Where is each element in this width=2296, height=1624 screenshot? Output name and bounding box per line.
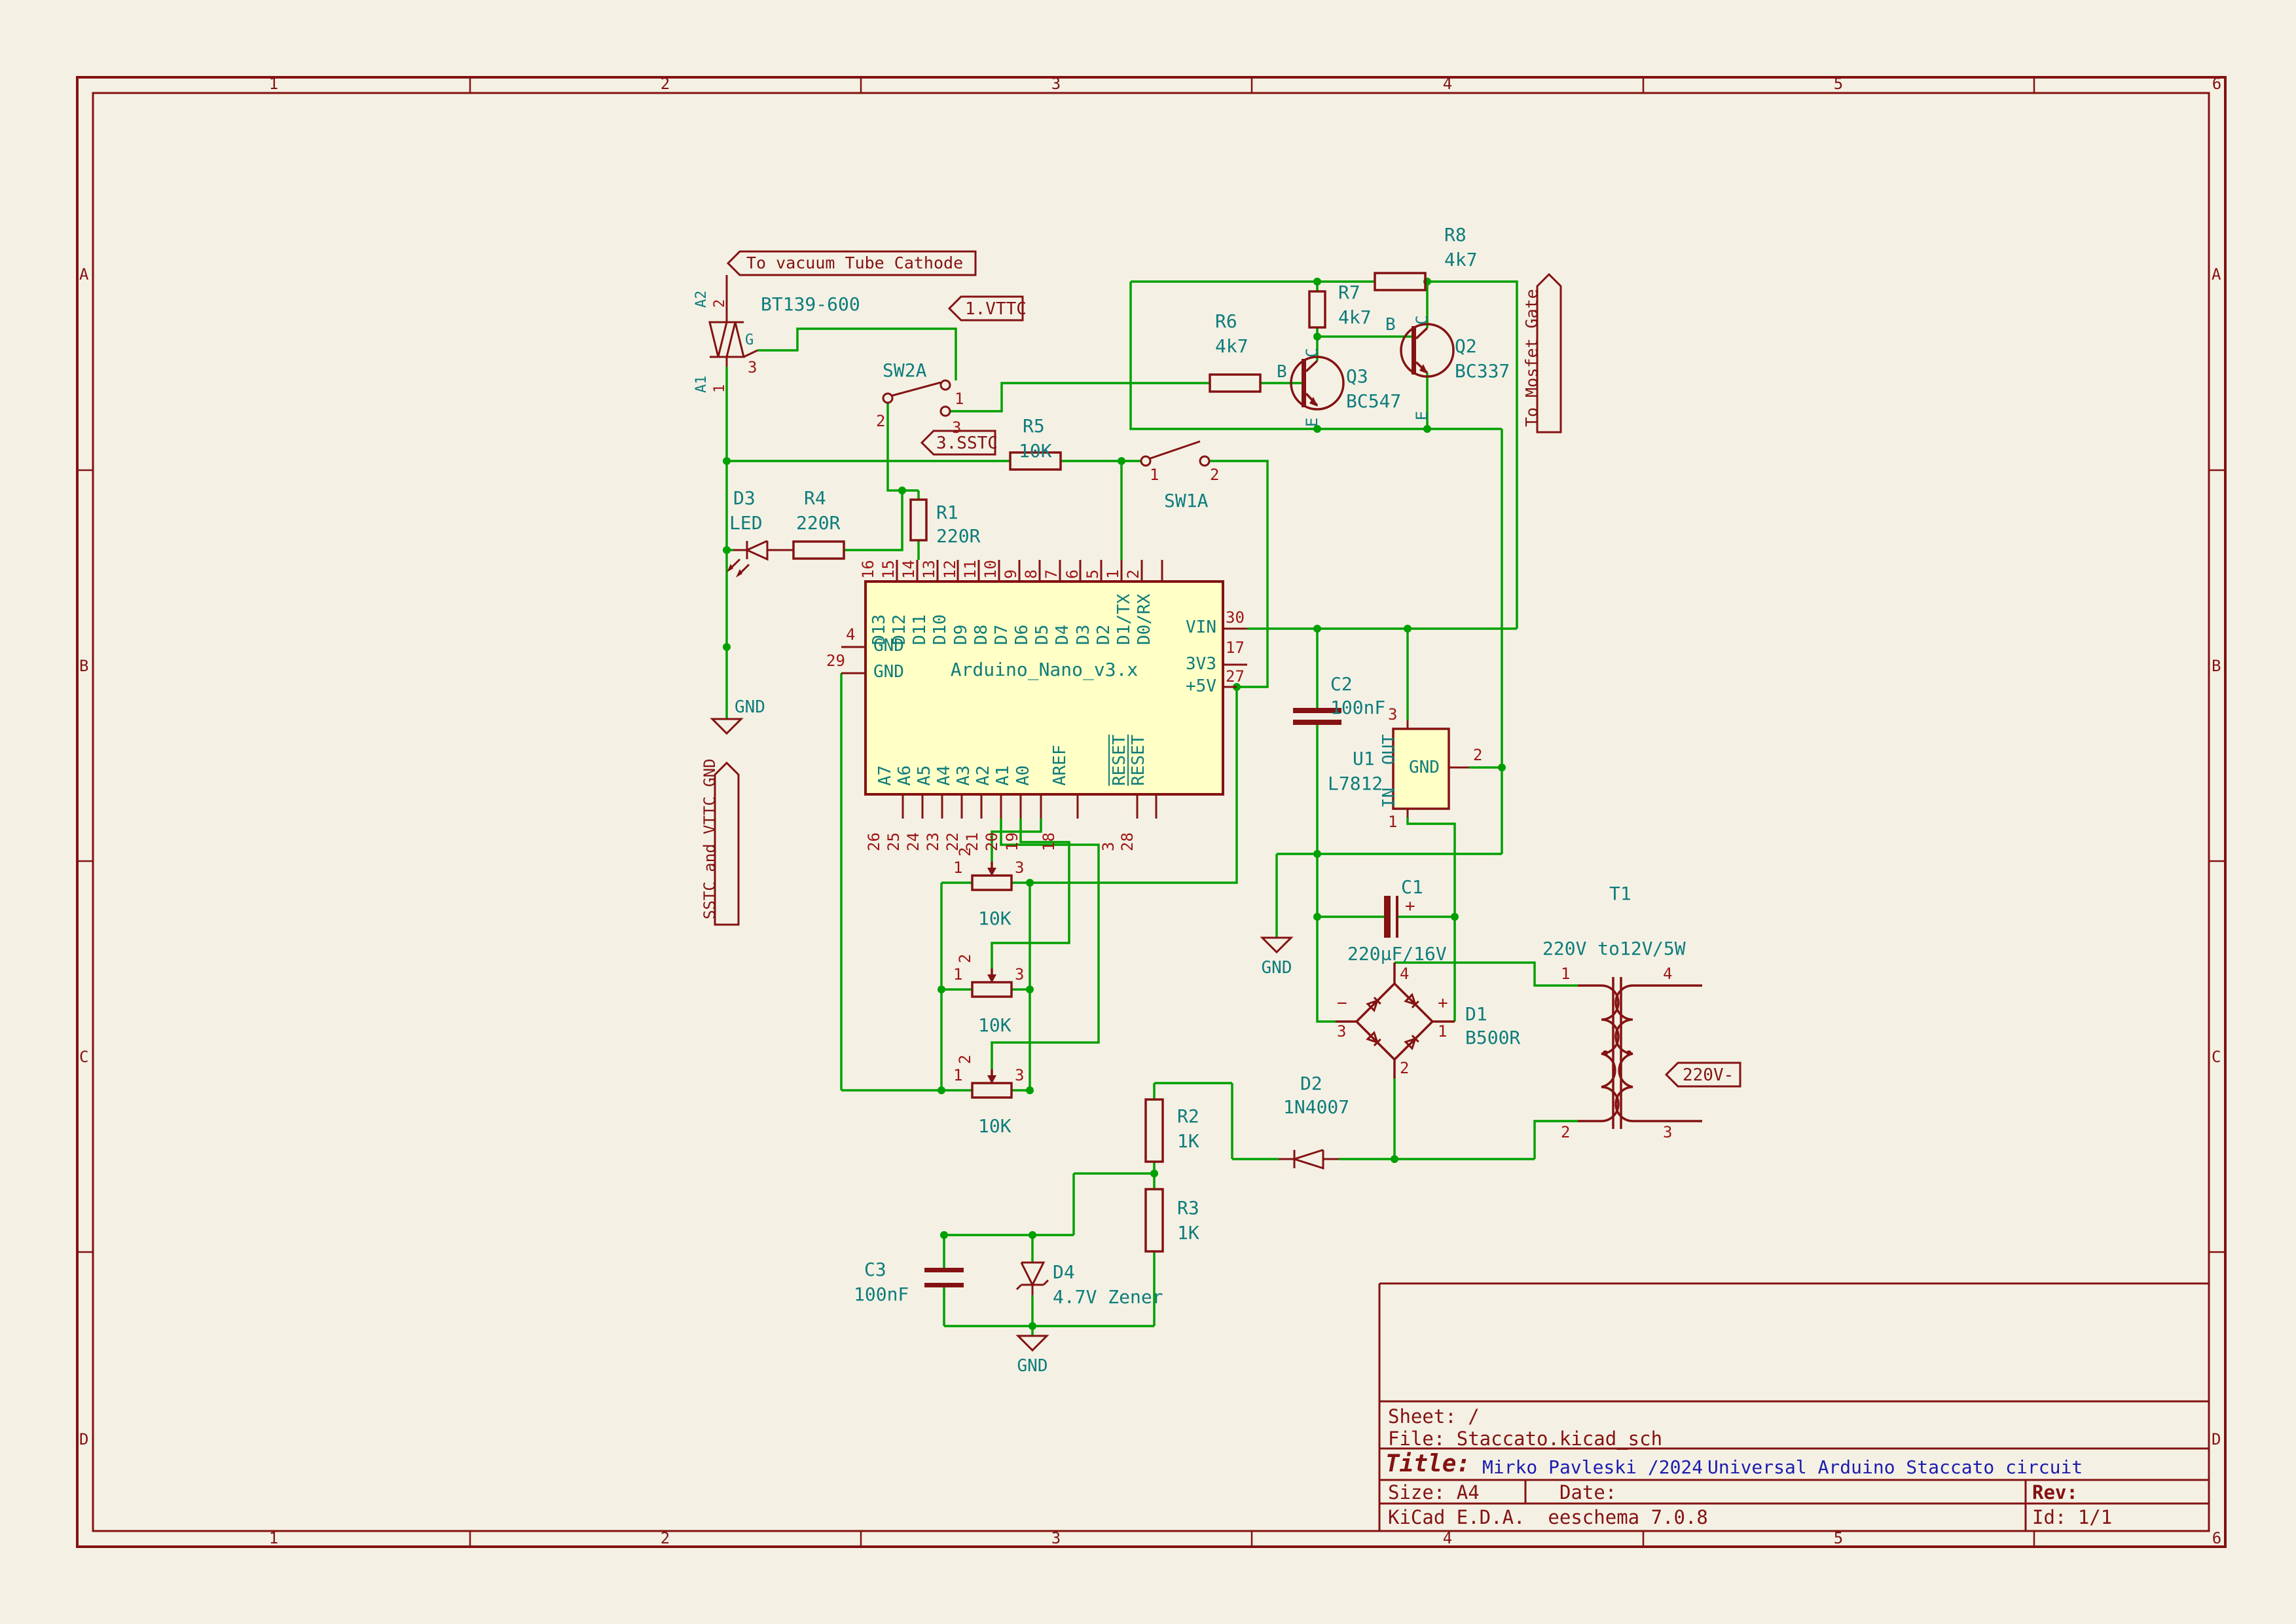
capacitor-c1 (1384, 896, 1398, 938)
d3-ref[interactable]: D3 (733, 489, 756, 509)
u1-pin-gnd: GND (1409, 758, 1440, 777)
sw1a-pin1: 1 (1150, 466, 1159, 483)
t1-value[interactable]: 220V to12V (1542, 939, 1653, 959)
ard-top-n-2: 14 (900, 560, 918, 579)
zone-col-5-bottom: 5 (1825, 1530, 1851, 1547)
zone-col-3-top: 3 (1043, 75, 1069, 92)
tb-size: Size: A4 (1388, 1483, 1480, 1504)
ard-top-l-8: D5 (1033, 625, 1051, 645)
t1-power: /5W (1652, 939, 1686, 959)
ard-top-l-10: D3 (1074, 625, 1093, 645)
r7-value[interactable]: 4k7 (1338, 308, 1372, 328)
u1-pin-out: OUT (1380, 734, 1398, 765)
c3-value[interactable]: 100nF (854, 1285, 909, 1305)
pot3-n2: 2 (956, 1055, 974, 1064)
t1-ref[interactable]: T1 (1609, 884, 1631, 904)
ard-bot-l-5: A2 (974, 766, 993, 786)
arduino-pin17-number: 17 (1226, 639, 1245, 656)
title-block-lines (1379, 1283, 2209, 1531)
q3-pin-b: B (1277, 363, 1287, 382)
zone-col-1-top: 1 (261, 75, 287, 92)
q3-value[interactable]: BC547 (1346, 392, 1401, 412)
d2-ref[interactable]: D2 (1300, 1074, 1322, 1094)
zone-col-1-bottom: 1 (261, 1530, 287, 1547)
sstc-label[interactable]: 3.SSTC (936, 434, 998, 453)
zone-row-d-right: D (2212, 1431, 2221, 1448)
wires (727, 282, 1578, 1336)
zone-col-4-top: 4 (1434, 75, 1461, 92)
arduino-3v3-label: 3V3 (1159, 655, 1216, 674)
zone-col-2-bottom: 2 (652, 1530, 678, 1547)
pot1-n3: 3 (1015, 859, 1024, 876)
d1-plus: + (1438, 994, 1448, 1013)
ard-bot-n-10: 28 (1118, 832, 1137, 851)
arduino-pin27-number: 27 (1226, 668, 1245, 685)
c3-ref[interactable]: C3 (864, 1260, 886, 1280)
arduino-vin-label: VIN (1159, 618, 1216, 637)
tb-id: Id: 1/1 (2032, 1507, 2112, 1528)
ard-bot-n-6: 20 (983, 832, 1001, 851)
arduino-5v-label: +5V (1159, 677, 1216, 696)
c2-ref[interactable]: C2 (1330, 674, 1353, 695)
ard-top-n-10: 6 (1063, 570, 1082, 579)
ard-bot-l-6: A1 (994, 766, 1012, 786)
ard-bot-l-10: RESET (1129, 735, 1148, 786)
ard-top-l-1: D12 (890, 614, 909, 645)
q3-pin-e: E (1303, 418, 1321, 427)
r5-ref[interactable]: R5 (1023, 416, 1045, 437)
q2-pin-e: E (1413, 411, 1431, 420)
ard-top-l-11: D2 (1095, 625, 1113, 645)
tb-title[interactable]: Universal Arduino Staccato circuit (1707, 1458, 2083, 1478)
d3-value[interactable]: LED (729, 513, 763, 534)
q2-ref[interactable]: Q2 (1455, 337, 1477, 357)
r6-ref[interactable]: R6 (1215, 312, 1237, 332)
ard-top-n-13: 2 (1124, 570, 1142, 579)
d4-ref[interactable]: D4 (1053, 1263, 1075, 1283)
d1-n4: 4 (1400, 965, 1409, 982)
zone-row-c-right: C (2212, 1048, 2221, 1065)
t1-n3: 3 (1663, 1124, 1672, 1141)
r1-value[interactable]: 220R (936, 526, 980, 547)
vttc-cathode-label[interactable]: To vacuum Tube Cathode (746, 254, 963, 272)
pot3-n1: 1 (953, 1067, 962, 1084)
bridge-rectifier-symbol (1336, 963, 1455, 1079)
ard-top-n-1: 15 (879, 560, 898, 579)
transistor-q2 (1401, 324, 1453, 377)
r8-value[interactable]: 4k7 (1444, 250, 1478, 270)
t1-n1: 1 (1561, 965, 1570, 982)
u1-n3: 3 (1388, 706, 1397, 723)
r4-value[interactable]: 220R (796, 513, 840, 534)
tb-date: Date: (1559, 1483, 1616, 1504)
ard-top-n-8: 8 (1022, 570, 1040, 579)
ard-top-n-6: 10 (981, 560, 1000, 579)
r5-value[interactable]: 10K (1019, 441, 1052, 462)
sw1a-pin2: 2 (1210, 466, 1219, 483)
triac-symbol (710, 275, 757, 367)
triac-pin-a2: A2 (693, 291, 711, 308)
t1-n4: 4 (1663, 965, 1672, 982)
ard-top-n-11: 5 (1084, 570, 1102, 579)
u1-value[interactable]: L7812 (1328, 774, 1383, 794)
gnd-text-1: GND (735, 698, 765, 717)
c1-ref[interactable]: C1 (1401, 877, 1423, 898)
arduino-gnd-label-2: GND (873, 663, 904, 682)
ard-top-l-13: D0/RX (1135, 594, 1154, 645)
sw2a-pin2: 2 (876, 413, 885, 430)
c1-value[interactable]: 220µF/16V (1347, 944, 1447, 965)
ard-bot-l-0: A7 (876, 766, 894, 786)
ard-top-n-3: 13 (920, 560, 938, 579)
r4-ref[interactable]: R4 (804, 489, 826, 509)
r7-ref[interactable]: R7 (1338, 283, 1360, 303)
zone-row-b-left: B (79, 657, 88, 674)
ard-bot-n-0: 26 (865, 832, 883, 851)
zone-row-c-left: C (79, 1048, 88, 1065)
pot1-n1: 1 (953, 859, 962, 876)
ard-top-l-12: D1/TX (1115, 594, 1133, 645)
ard-top-l-5: D8 (972, 625, 991, 645)
pot2-value[interactable]: 10K (978, 1016, 1011, 1036)
u1-pin-in: IN (1380, 788, 1398, 808)
transformer-symbol (1578, 977, 1702, 1129)
ard-top-l-9: D4 (1053, 625, 1072, 645)
ard-bot-n-8: 18 (1040, 832, 1058, 851)
sstc-vttc-gnd-label[interactable]: SSTC and VTTC GND (701, 758, 719, 919)
triac-pin1-number: 1 (711, 384, 729, 393)
zone-col-2-top: 2 (652, 75, 678, 92)
led-symbol (727, 541, 793, 578)
arduino-pin30-number: 30 (1226, 609, 1245, 626)
schematic-sheet: 1 2 3 4 5 6 1 2 3 4 5 6 A B C D A B C D … (0, 0, 2296, 1624)
zone-col-6-bottom: 6 (2204, 1530, 2230, 1547)
pot3-value[interactable]: 10K (978, 1116, 1011, 1137)
gnd-text-2: GND (1254, 959, 1299, 978)
d1-n3: 3 (1337, 1023, 1346, 1040)
ard-bot-l-8: AREF (1051, 745, 1069, 786)
zone-row-a-right: A (2212, 266, 2221, 283)
tb-sheet: Sheet: / (1388, 1407, 1480, 1428)
tb-rev: Rev: (2032, 1483, 2078, 1504)
triac-value[interactable]: BT139-600 (761, 295, 860, 315)
ard-top-l-3: D10 (931, 614, 949, 645)
d1-value[interactable]: B500R (1465, 1028, 1520, 1048)
mosfet-gate-label[interactable]: To Mosfet Gate (1523, 289, 1541, 427)
ard-top-l-7: D6 (1013, 625, 1031, 645)
r3-ref[interactable]: R3 (1177, 1198, 1199, 1219)
capacitor-c3 (924, 1268, 964, 1287)
ard-bot-l-9: RESET (1110, 735, 1129, 786)
v220-label[interactable]: 220V- (1683, 1066, 1734, 1085)
zone-col-6-top: 6 (2204, 75, 2230, 92)
c1-plus: + (1405, 897, 1415, 916)
zone-col-3-bottom: 3 (1043, 1530, 1069, 1547)
q3-pin-c: C (1303, 348, 1321, 358)
ard-top-n-4: 12 (941, 560, 959, 579)
triac-pin-a1: A1 (693, 376, 711, 394)
ard-top-n-9: 7 (1042, 570, 1061, 579)
zone-row-d-left: D (79, 1431, 88, 1448)
q2-pin-b: B (1385, 316, 1396, 335)
arduino-pin29-number: 29 (826, 652, 845, 669)
zener-d4 (1017, 1263, 1048, 1295)
t1-n2: 2 (1561, 1124, 1570, 1141)
d1-minus: − (1337, 994, 1347, 1013)
tb-file: File: Staccato.kicad_sch (1388, 1429, 1662, 1450)
triac-pin2-number: 2 (711, 299, 729, 308)
pot1-value[interactable]: 10K (978, 909, 1011, 929)
d1-n1: 1 (1438, 1023, 1447, 1040)
q2-value[interactable]: BC337 (1455, 361, 1510, 382)
sw2a-pin1: 1 (955, 390, 964, 407)
sw2a-pin3: 3 (952, 419, 961, 436)
r2-value[interactable]: 1K (1177, 1132, 1199, 1152)
gnd-text-3: GND (1010, 1357, 1055, 1376)
ard-top-l-0: D13 (870, 614, 888, 645)
r2-ref[interactable]: R2 (1177, 1107, 1199, 1127)
r3-value[interactable]: 1K (1177, 1223, 1199, 1244)
schematic-canvas (0, 0, 2296, 1624)
ard-bot-n-7: 19 (1003, 832, 1021, 851)
c2-value[interactable]: 100nF (1330, 698, 1385, 718)
ard-top-n-0: 16 (859, 560, 877, 579)
ard-top-l-4: D9 (952, 625, 970, 645)
ard-bot-l-1: A6 (896, 766, 914, 786)
ard-bot-l-4: A3 (955, 766, 973, 786)
u1-ref[interactable]: U1 (1353, 749, 1375, 769)
zone-col-4-bottom: 4 (1434, 1530, 1461, 1547)
zone-col-5-top: 5 (1825, 75, 1851, 92)
ard-top-l-6: D7 (993, 625, 1011, 645)
ard-bot-n-3: 23 (924, 832, 942, 851)
sw2a-ref[interactable]: SW2A (883, 361, 926, 381)
tb-software: KiCad E.D.A. eeschema 7.0.8 (1388, 1507, 1708, 1528)
tb-author[interactable]: Mirko Pavleski /2024 (1482, 1458, 1703, 1478)
ard-bot-l-7: A0 (1014, 766, 1032, 786)
u1-n1: 1 (1388, 813, 1397, 830)
pot1-n2: 2 (956, 847, 974, 857)
ard-bot-n-1: 25 (884, 832, 903, 851)
pot2-n3: 3 (1015, 966, 1024, 983)
ard-bot-n-2: 24 (904, 832, 922, 851)
d4-value[interactable]: 4.7V Zener (1053, 1287, 1163, 1308)
r8-ref[interactable]: R8 (1444, 225, 1467, 246)
q2-pin-c: C (1413, 316, 1431, 325)
ard-top-l-2: D11 (911, 614, 929, 645)
u1-n2: 2 (1473, 747, 1482, 764)
ard-bot-l-2: A5 (915, 766, 934, 786)
sw1a-ref[interactable]: SW1A (1164, 491, 1208, 511)
pot2-n1: 1 (953, 966, 962, 983)
q3-ref[interactable]: Q3 (1346, 367, 1368, 387)
triac-pin3-number: 3 (748, 359, 757, 376)
vttc-label[interactable]: 1.VTTC (965, 300, 1027, 319)
tb-title-label: Title: (1385, 1451, 1470, 1477)
d1-n2: 2 (1400, 1060, 1409, 1077)
arduino-pin4-number: 4 (846, 626, 855, 643)
r6-value[interactable]: 4k7 (1215, 337, 1248, 357)
ard-bot-l-3: A4 (935, 766, 953, 786)
ard-top-n-5: 11 (961, 560, 979, 579)
triac-pin-g: G (745, 333, 754, 348)
ard-top-n-7: 9 (1002, 570, 1020, 579)
d2-value[interactable]: 1N4007 (1283, 1098, 1349, 1118)
ard-top-n-12: 1 (1104, 570, 1122, 579)
ard-bot-n-9: 3 (1099, 842, 1118, 851)
pot2-n2: 2 (956, 954, 974, 963)
r1-ref[interactable]: R1 (936, 503, 958, 523)
pot3-n3: 3 (1015, 1067, 1024, 1084)
zone-row-a-left: A (79, 266, 88, 283)
diode-d2 (1279, 1150, 1339, 1168)
d1-ref[interactable]: D1 (1465, 1005, 1487, 1025)
arduino-name[interactable]: Arduino_Nano_v3.x (946, 660, 1142, 680)
zone-row-b-right: B (2212, 657, 2221, 674)
